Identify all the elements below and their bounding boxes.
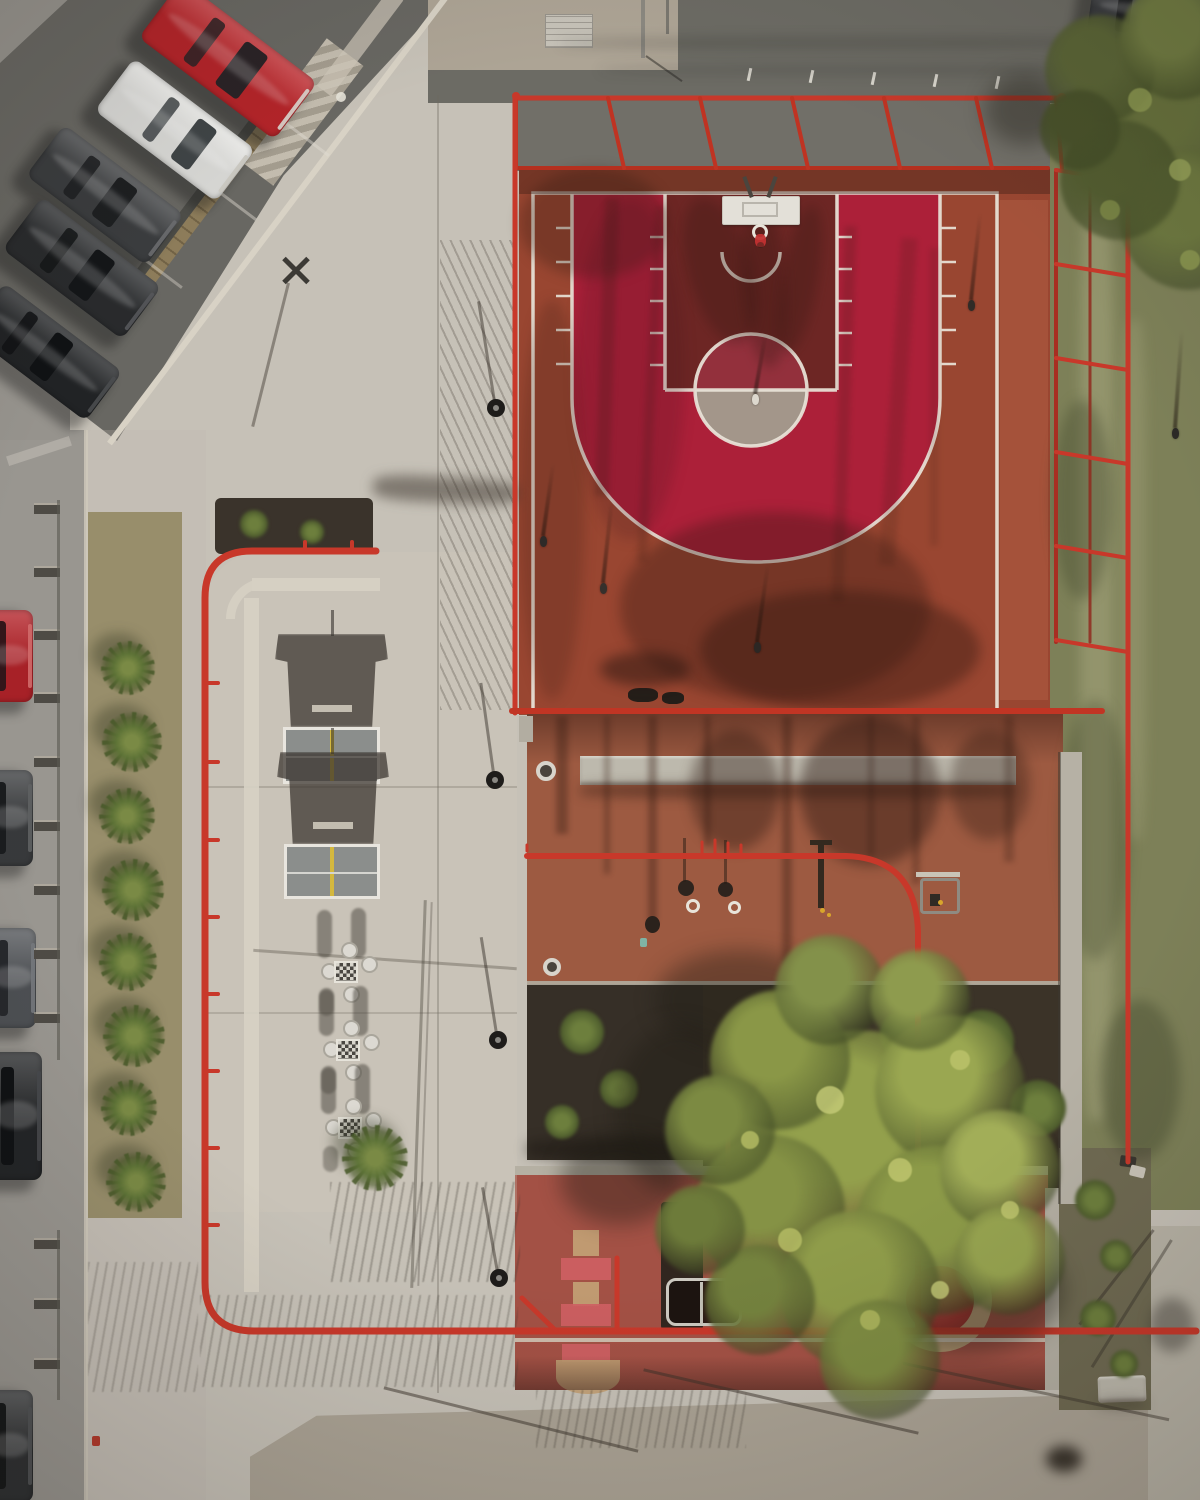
red-steel-structures [0, 0, 1200, 1500]
handrail-pipe-loop [205, 551, 1196, 1331]
handrail-pipe-stubs [205, 542, 352, 1225]
aerial-park-photograph [0, 0, 1200, 1500]
fence-corner-joint-left [512, 92, 520, 100]
fence-top-rungs [516, 98, 1062, 168]
fence-corner-joint [1057, 93, 1067, 103]
playground-pipe-posts [522, 1098, 728, 1331]
pullup-bar-pipe [527, 856, 918, 1331]
fence-ladder-rungs [1056, 170, 1128, 652]
